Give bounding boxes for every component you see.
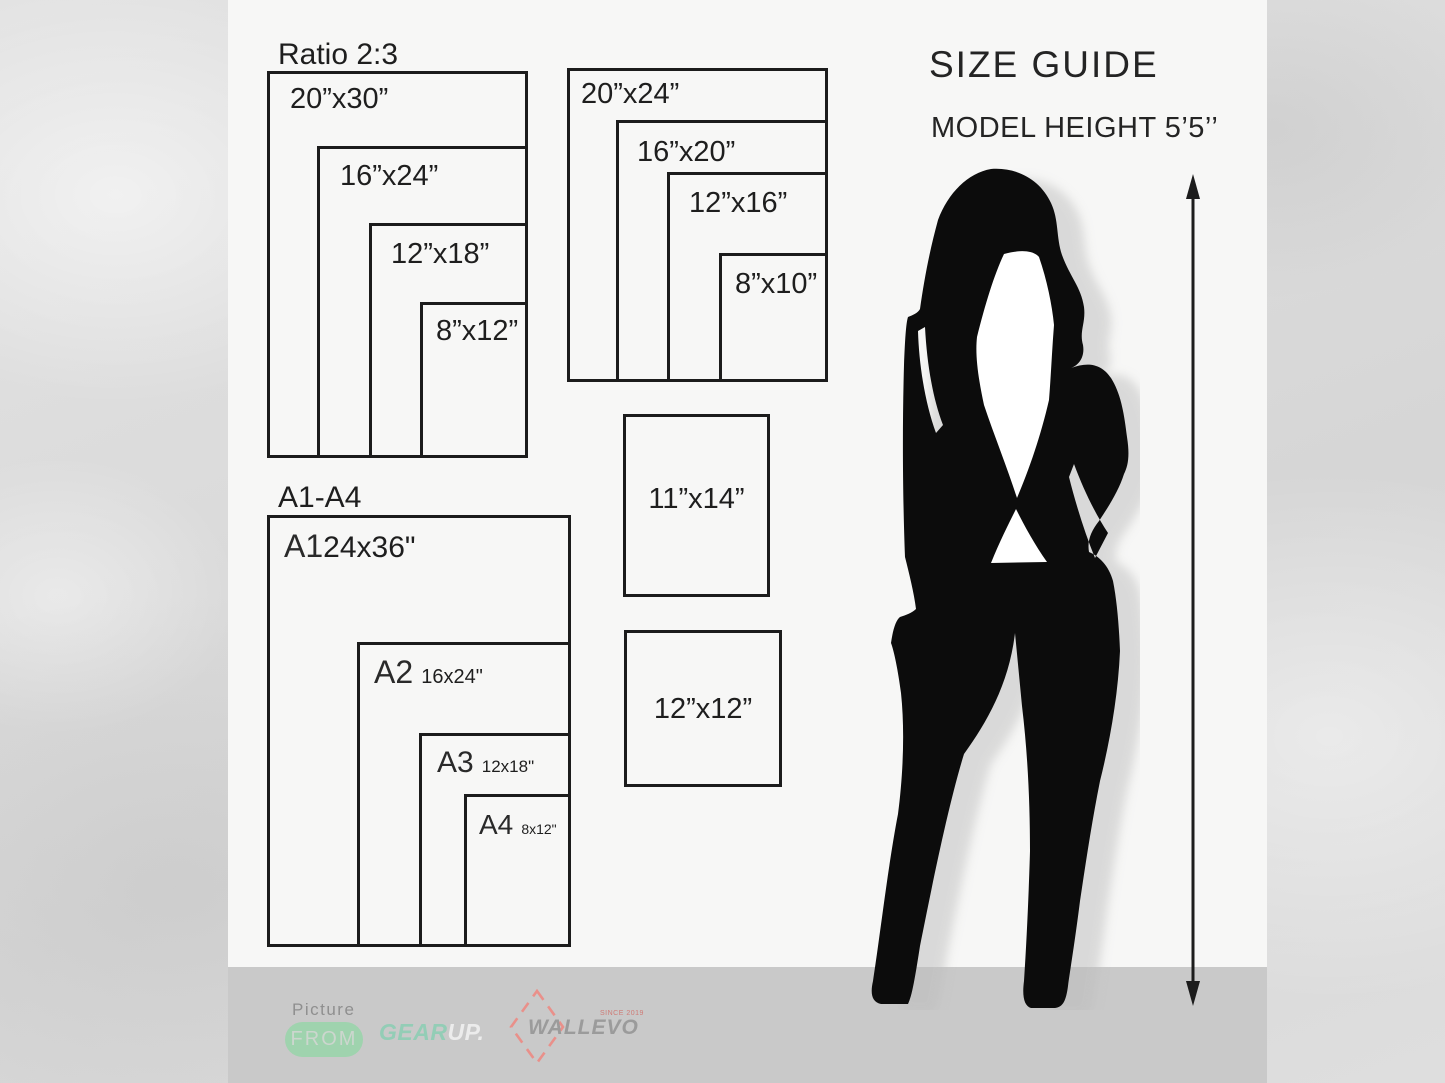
- rect-8x12: 8”x12”: [420, 302, 528, 458]
- a1-name: A1: [284, 528, 323, 564]
- gearup-logo-gear: GEAR: [379, 1019, 447, 1045]
- gearup-logo-up: UP.: [447, 1019, 484, 1045]
- size-label-11x14: 11”x14”: [626, 483, 767, 516]
- picture-from-label: Picture: [292, 1000, 355, 1020]
- size-label-8x10: 8”x10”: [735, 268, 817, 301]
- a4-size: 8x12": [521, 821, 556, 837]
- arrow-down-head: [1186, 981, 1200, 1006]
- a1-size: 24x36": [323, 531, 415, 564]
- size-label-20x24: 20”x24”: [581, 78, 679, 111]
- from-badge-text: FROM: [291, 1028, 358, 1051]
- a3-size: 12x18": [482, 757, 534, 776]
- size-label-12x16: 12”x16”: [689, 187, 787, 220]
- size-label-8x12: 8”x12”: [436, 315, 518, 348]
- gearup-logo: GEARUP.: [379, 1019, 484, 1046]
- woman-silhouette: [860, 165, 1140, 1010]
- rect-11x14: 11”x14”: [623, 414, 770, 597]
- size-label-16x20: 16”x20”: [637, 136, 735, 169]
- size-label-20x30: 20”x30”: [290, 83, 388, 116]
- a4-name: A4: [479, 809, 513, 840]
- rect-8x10: 8”x10”: [719, 253, 828, 382]
- from-badge: FROM: [285, 1022, 363, 1057]
- size-guide-poster: Ratio 2:3 20”x30” 16”x24” 12”x18” 8”x12”…: [0, 0, 1445, 1083]
- size-label-16x24: 16”x24”: [340, 160, 438, 193]
- size-guide-title: SIZE GUIDE: [929, 44, 1159, 86]
- model-height-label: MODEL HEIGHT 5’5’’: [931, 112, 1218, 145]
- a3-name: A3: [437, 746, 474, 779]
- a2-size: 16x24": [421, 666, 483, 688]
- ratio23-label: Ratio 2:3: [278, 38, 398, 72]
- arrow-up-head: [1186, 174, 1200, 199]
- rect-12x12: 12”x12”: [624, 630, 782, 787]
- height-arrow: [1181, 173, 1205, 1007]
- a-series-label: A1-A4: [278, 481, 361, 515]
- size-label-12x12: 12”x12”: [627, 693, 779, 726]
- size-label-12x18: 12”x18”: [391, 238, 489, 271]
- wallevo-logo: WALLEVO: [528, 1016, 639, 1040]
- rect-a4: A4 8x12": [464, 794, 571, 947]
- a2-name: A2: [374, 654, 413, 690]
